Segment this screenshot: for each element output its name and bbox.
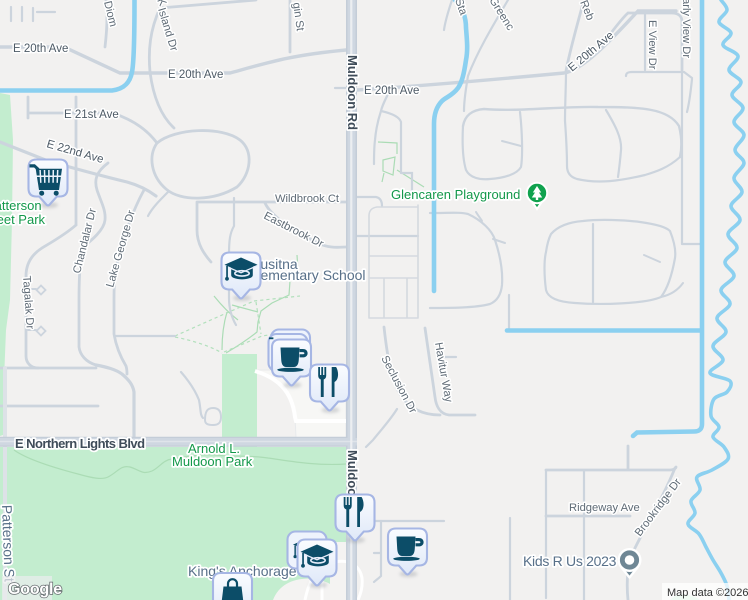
- svg-text:arly View Dr: arly View Dr: [680, 0, 692, 58]
- svg-text:Muldoon Park: Muldoon Park: [172, 454, 253, 469]
- svg-text:E View Dr: E View Dr: [646, 20, 658, 70]
- svg-text:Patterson: Patterson: [0, 198, 42, 213]
- svg-text:Patterson St: Patterson St: [0, 505, 18, 583]
- svg-text:Google: Google: [8, 581, 62, 598]
- svg-text:E 21st Ave: E 21st Ave: [64, 109, 119, 121]
- svg-text:Elementary School: Elementary School: [248, 267, 366, 283]
- svg-text:Ridgeway Ave: Ridgeway Ave: [569, 502, 640, 514]
- svg-text:Muldoon Rd: Muldoon Rd: [345, 55, 360, 130]
- svg-text:E Northern Lights Blvd: E Northern Lights Blvd: [15, 436, 145, 451]
- svg-text:Map data ©2026: Map data ©2026: [667, 587, 748, 599]
- svg-text:E 20th Ave: E 20th Ave: [364, 85, 419, 97]
- svg-text:E 20th Ave: E 20th Ave: [13, 43, 68, 55]
- svg-text:Glencaren Playground: Glencaren Playground: [391, 187, 520, 202]
- svg-text:E 20th Ave: E 20th Ave: [168, 69, 223, 81]
- svg-text:Wildbrook Ct: Wildbrook Ct: [275, 193, 340, 205]
- svg-text:Kids R Us 2023: Kids R Us 2023: [523, 553, 617, 569]
- svg-text:Street Park: Street Park: [0, 212, 46, 227]
